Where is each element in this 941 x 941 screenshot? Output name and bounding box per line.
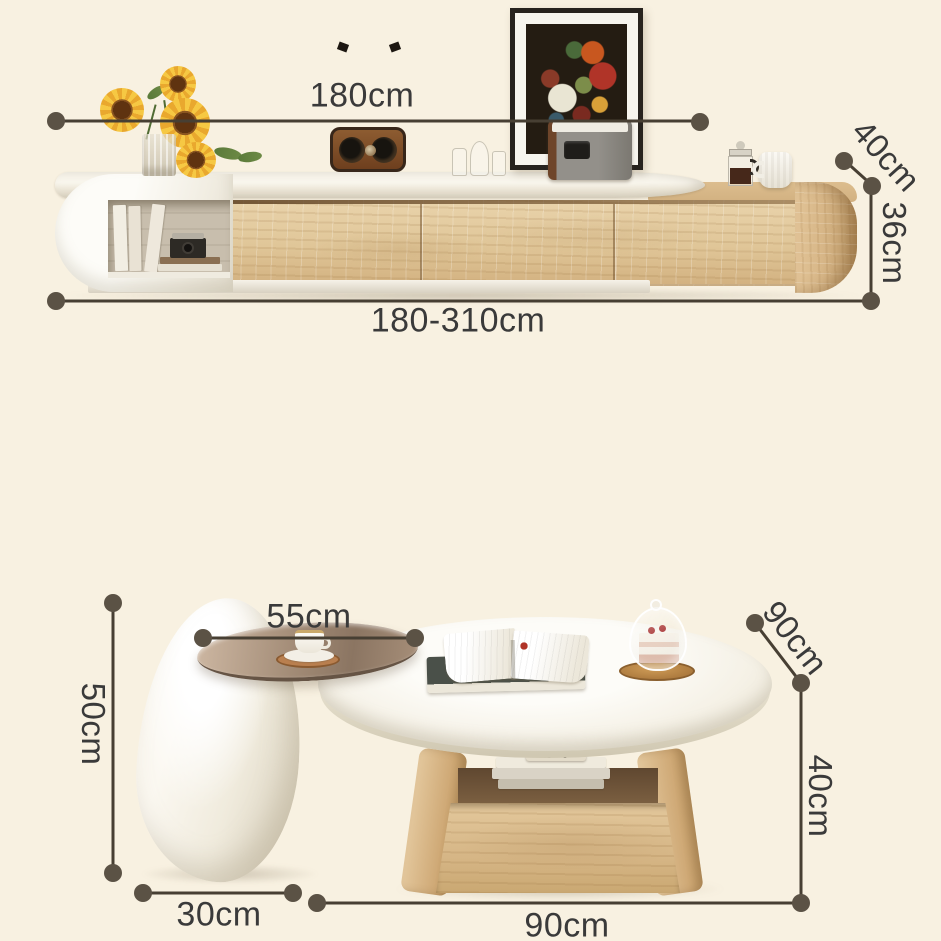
dim-label-tv-height: 36cm (875, 202, 913, 285)
dome-knob (650, 599, 662, 611)
shelf-floor (108, 272, 230, 278)
dim-line-tv-top-width (56, 120, 700, 123)
press-coffee (730, 168, 751, 184)
dim-line-side-tray-width (203, 637, 415, 640)
shelf-book (128, 206, 141, 271)
under-shelf-panel (436, 803, 680, 893)
sunflower (100, 88, 144, 132)
dim-line-tv-height (870, 186, 873, 302)
speaker-leg (389, 42, 401, 53)
dim-label-side-base-width: 30cm (176, 896, 261, 935)
dim-dot (863, 177, 881, 195)
stacked-book (158, 264, 222, 271)
shelf-book (113, 205, 128, 271)
dim-label-tv-depth: 40cm (844, 113, 928, 200)
dim-dot (47, 292, 65, 310)
dim-dot (104, 864, 122, 882)
french-press (727, 141, 754, 191)
speaker-dial (365, 145, 376, 156)
stacked-book (160, 257, 220, 264)
dim-label-side-height: 50cm (74, 683, 112, 766)
vintage-camera (170, 238, 206, 258)
sunflower (160, 66, 196, 102)
speaker-leg (337, 42, 349, 53)
sunflower (176, 142, 216, 178)
open-book-right-page (510, 630, 589, 683)
dim-dot (406, 629, 424, 647)
flower-leaf (237, 150, 262, 163)
dim-dot (194, 629, 212, 647)
dim-dot (835, 152, 853, 170)
glassware (492, 151, 506, 176)
dim-dot (691, 113, 709, 131)
open-book-spine (511, 640, 516, 680)
retro-speaker (330, 127, 406, 172)
press-lid (729, 149, 752, 156)
open-book-left-page (443, 628, 519, 684)
glassware (470, 141, 489, 176)
dim-line-side-base-width (143, 892, 293, 895)
projector (548, 120, 632, 180)
tv-stand-drawers (228, 200, 801, 286)
product-dimension-diagram: 180cm 40cm 36cm 180-310cm (0, 0, 941, 941)
dim-label-side-tray-width: 55cm (266, 598, 351, 637)
drawer-gap (420, 204, 422, 284)
glass-vase (142, 134, 176, 176)
drawer-gap (613, 204, 615, 284)
speaker-cone (339, 137, 365, 163)
dim-label-tv-top-width: 180cm (310, 77, 415, 116)
under-shelf-book (492, 768, 610, 779)
dim-dot (284, 884, 302, 902)
page-illustration (519, 642, 529, 650)
tv-stand-right-cap (795, 182, 857, 293)
open-shelf (108, 200, 230, 278)
dim-dot (104, 594, 122, 612)
dim-dot (862, 292, 880, 310)
dim-dot (308, 894, 326, 912)
dim-label-table-height: 40cm (801, 755, 839, 838)
under-shelf-book (498, 779, 604, 789)
tv-stand-left-cabinet (55, 174, 233, 292)
glass-cake-dome (629, 607, 687, 671)
white-mug (759, 152, 792, 188)
glassware (452, 148, 467, 176)
dim-label-table-width: 90cm (524, 907, 609, 941)
dim-dot (134, 884, 152, 902)
dim-label-tv-total-width: 180-310cm (371, 302, 546, 341)
dim-line-table-width (317, 902, 801, 905)
dim-dot (792, 894, 810, 912)
dim-dot (47, 112, 65, 130)
